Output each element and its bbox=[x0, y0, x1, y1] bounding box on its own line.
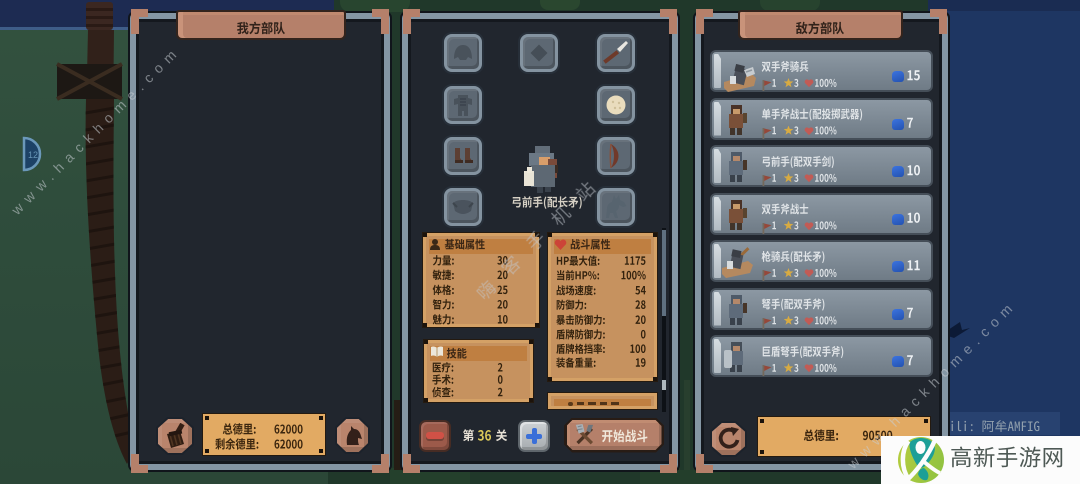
svg-text:12: 12 bbox=[28, 150, 38, 160]
